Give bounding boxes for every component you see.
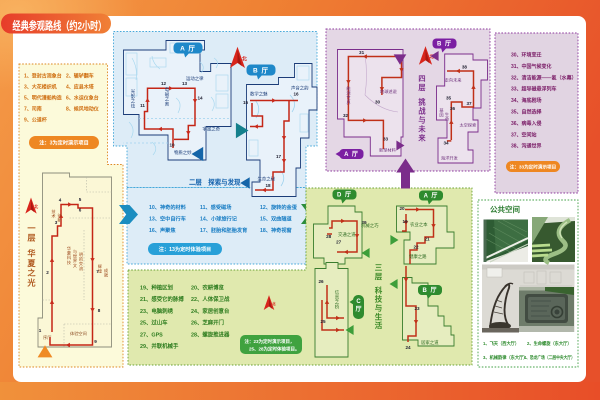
svg-text:居家之道: 居家之道 — [421, 339, 439, 346]
svg-text:16: 16 — [293, 92, 299, 97]
svg-text:29、并联机械手: 29、并联机械手 — [140, 342, 179, 350]
svg-text:注：23为定时演示项目，: 注：23为定时演示项目， — [245, 338, 295, 345]
svg-text:31、中国气候变化: 31、中国气候变化 — [511, 63, 552, 70]
svg-text:25、28为定时体验项目。: 25、28为定时体验项目。 — [249, 346, 300, 353]
svg-text:18、神奇视窗: 18、神奇视窗 — [260, 226, 292, 234]
svg-text:太空探索: 太空探索 — [460, 122, 477, 129]
svg-text:23、电脑刺绣: 23、电脑刺绣 — [140, 307, 174, 315]
svg-text:5、明代漕船构造: 5、明代漕船构造 — [24, 95, 63, 102]
svg-text:24、家居创意台: 24、家居创意台 — [191, 307, 230, 315]
svg-text:物质之妙: 物质之妙 — [174, 149, 192, 156]
svg-text:A 厅: A 厅 — [344, 150, 359, 158]
svg-text:22、人体保卫战: 22、人体保卫战 — [191, 295, 230, 303]
svg-text:13、空中自行车: 13、空中自行车 — [149, 215, 186, 223]
svg-text:一层华夏之光: 一层华夏之光 — [26, 224, 36, 287]
svg-text:36: 36 — [450, 106, 456, 111]
svg-text:生命之秘: 生命之秘 — [258, 176, 276, 183]
svg-text:27: 27 — [336, 240, 342, 245]
svg-text:9: 9 — [94, 339, 97, 344]
svg-text:38、沟通世界: 38、沟通世界 — [511, 143, 543, 150]
svg-text:四层挑战与未来: 四层挑战与未来 — [417, 74, 426, 142]
svg-text:28: 28 — [326, 234, 332, 239]
svg-text:海洋开发: 海洋开发 — [441, 155, 459, 162]
svg-text:17: 17 — [276, 154, 282, 159]
svg-text:二层 探索与发现: 二层 探索与发现 — [189, 177, 241, 186]
svg-text:30: 30 — [375, 100, 381, 105]
svg-text:序厅: 序厅 — [43, 334, 51, 341]
svg-text:15、双曲隧道: 15、双曲隧道 — [260, 215, 293, 223]
svg-text:16、声聚焦: 16、声聚焦 — [149, 226, 176, 234]
svg-text:公共空间: 公共空间 — [490, 204, 520, 214]
svg-text:电磁之奥: 电磁之奥 — [165, 86, 170, 107]
svg-text:创新: 创新 — [57, 212, 61, 224]
svg-text:走向未来: 走向未来 — [445, 77, 463, 84]
svg-text:9、公道杯: 9、公道杯 — [24, 117, 48, 124]
svg-text:15: 15 — [243, 100, 249, 105]
svg-text:26: 26 — [318, 279, 324, 284]
svg-text:23: 23 — [414, 306, 420, 311]
svg-text:33: 33 — [383, 137, 389, 142]
svg-text:17、胚胎和胚胎发育: 17、胚胎和胚胎发育 — [200, 226, 247, 234]
svg-text:21、感受它的脉搏: 21、感受它的脉搏 — [140, 295, 184, 303]
svg-text:12: 12 — [161, 81, 167, 86]
svg-text:19: 19 — [402, 219, 408, 224]
svg-text:1: 1 — [39, 328, 42, 333]
svg-text:27、GPS: 27、GPS — [140, 332, 163, 338]
svg-text:注：13为定时体验项目: 注：13为定时体验项目 — [159, 245, 211, 253]
svg-text:2、生命螺旋（东大厅）: 2、生命螺旋（东大厅） — [527, 340, 572, 347]
svg-text:4、恐龙广场（二层中央大厅）: 4、恐龙广场（二层中央大厅） — [524, 354, 575, 362]
svg-text:北: 北 — [242, 56, 247, 63]
svg-text:18: 18 — [265, 183, 271, 188]
svg-text:25、过山车: 25、过山车 — [140, 319, 168, 327]
svg-text:25: 25 — [320, 319, 326, 324]
svg-text:34: 34 — [443, 141, 449, 146]
svg-text:8: 8 — [98, 308, 101, 313]
svg-text:声音之韵: 声音之韵 — [291, 85, 309, 92]
svg-text:体验空间: 体验空间 — [70, 330, 87, 337]
svg-text:健康之路: 健康之路 — [409, 253, 427, 260]
svg-text:30、环境变迁: 30、环境变迁 — [511, 52, 542, 59]
svg-text:1、飞天（西大厅）: 1、飞天（西大厅） — [483, 340, 519, 347]
svg-text:24: 24 — [405, 345, 411, 350]
svg-text:新型材料: 新型材料 — [379, 147, 397, 154]
svg-text:6: 6 — [79, 208, 82, 213]
svg-text:38: 38 — [462, 65, 468, 70]
svg-text:31: 31 — [359, 50, 365, 55]
svg-text:37、空间站: 37、空间站 — [511, 131, 537, 138]
svg-text:经典参观路线（约2小时）: 经典参观路线（约2小时） — [13, 19, 107, 33]
svg-text:三层科技与生活: 三层科技与生活 — [375, 263, 383, 330]
svg-text:32: 32 — [343, 113, 349, 118]
svg-text:20、农耕博览: 20、农耕博览 — [191, 284, 225, 292]
svg-text:2: 2 — [46, 270, 49, 275]
svg-text:注：33为定时演示项目: 注：33为定时演示项目 — [510, 164, 556, 171]
svg-text:34、海底剧场: 34、海底剧场 — [511, 97, 542, 104]
svg-text:26、芝麻开门: 26、芝麻开门 — [191, 319, 225, 327]
svg-text:注：3为定时演示项目: 注：3为定时演示项目 — [39, 139, 89, 147]
svg-text:22: 22 — [413, 245, 419, 250]
svg-text:11、感受磁场: 11、感受磁场 — [200, 203, 231, 211]
svg-text:28、螺旋推进器: 28、螺旋推进器 — [191, 330, 230, 338]
svg-text:10、神奇的材料: 10、神奇的材料 — [149, 203, 187, 211]
svg-text:35、自然选择: 35、自然选择 — [511, 109, 543, 116]
svg-text:B 厅: B 厅 — [253, 66, 269, 74]
svg-text:光影之炫: 光影之炫 — [131, 88, 136, 109]
svg-text:农业之本: 农业之本 — [410, 221, 428, 228]
svg-text:7、司南: 7、司南 — [24, 106, 42, 113]
svg-text:20: 20 — [399, 206, 405, 211]
svg-text:信息之桥: 信息之桥 — [335, 289, 340, 310]
svg-text:地球述说: 地球述说 — [380, 88, 397, 95]
svg-text:21: 21 — [424, 237, 430, 242]
svg-text:19、种植区划: 19、种植区划 — [140, 284, 174, 292]
svg-text:33、超导磁悬浮列车: 33、超导磁悬浮列车 — [511, 86, 557, 93]
svg-text:北: 北 — [272, 301, 276, 306]
svg-text:A 厅: A 厅 — [424, 192, 439, 200]
svg-text:36、病毒入侵: 36、病毒入侵 — [511, 120, 542, 127]
svg-text:1、登封古观象台: 1、登封古观象台 — [24, 73, 62, 80]
svg-text:3、大花楼织机: 3、大花楼织机 — [24, 84, 57, 91]
svg-text:北: 北 — [34, 204, 38, 209]
svg-text:B 厅: B 厅 — [422, 286, 437, 294]
svg-text:13: 13 — [182, 81, 188, 86]
svg-text:D 厅: D 厅 — [337, 191, 352, 199]
svg-text:11: 11 — [140, 103, 145, 108]
svg-text:宇宙之奇: 宇宙之奇 — [203, 126, 221, 133]
svg-text:A 厅: A 厅 — [180, 44, 196, 52]
svg-text:35: 35 — [446, 96, 452, 101]
svg-text:12、旋转的金蛋: 12、旋转的金蛋 — [260, 203, 298, 211]
svg-text:交通之道: 交通之道 — [338, 231, 356, 238]
svg-text:4、应县木塔: 4、应县木塔 — [66, 84, 95, 91]
svg-text:机械之巧: 机械之巧 — [361, 222, 379, 229]
svg-text:B 厅: B 厅 — [437, 40, 452, 48]
svg-text:运动之律: 运动之律 — [186, 75, 204, 82]
svg-text:14、小球旅行记: 14、小球旅行记 — [200, 215, 238, 223]
svg-text:8、候风地动仪: 8、候风地动仪 — [66, 106, 100, 113]
svg-text:14: 14 — [197, 96, 203, 101]
svg-text:3、机械韵律（东大厅）: 3、机械韵律（东大厅） — [483, 354, 528, 361]
svg-text:37: 37 — [466, 101, 472, 106]
svg-text:2、辘轳翻车: 2、辘轳翻车 — [66, 73, 94, 80]
svg-text:32、清洁能源——氢（水幕）: 32、清洁能源——氢（水幕） — [511, 74, 577, 81]
svg-text:6、水运仪象台: 6、水运仪象台 — [66, 95, 99, 102]
svg-text:数学之魅: 数学之魅 — [250, 91, 268, 98]
svg-text:5: 5 — [79, 197, 82, 202]
svg-text:10: 10 — [169, 143, 175, 148]
svg-text:4: 4 — [59, 198, 62, 203]
